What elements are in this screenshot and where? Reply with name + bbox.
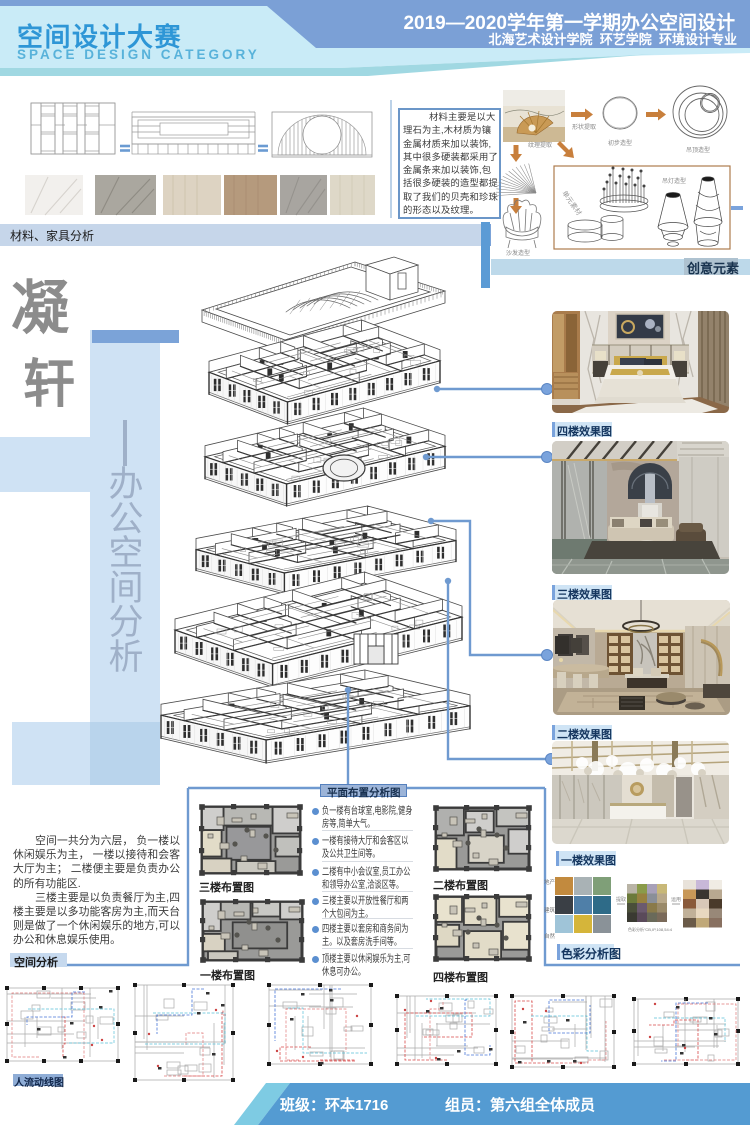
svg-text:单元素材: 单元素材 [560,189,583,217]
svg-text:色彩分析"CB,IP,108,54:4: 色彩分析"CB,IP,108,54:4 [628,926,673,932]
svg-text:自然: 自然 [544,932,556,940]
svg-text:建筑: 建筑 [544,906,556,914]
svg-text:提取: 提取 [616,896,626,903]
svg-text:吊灯造型: 吊灯造型 [662,177,686,185]
svg-text:纹理提取: 纹理提取 [528,141,552,149]
svg-text:初步造型: 初步造型 [608,139,632,147]
svg-text:运用: 运用 [671,896,681,903]
svg-text:形状提取: 形状提取 [572,123,596,131]
svg-text:吊顶造型: 吊顶造型 [686,146,710,154]
svg-text:地产: 地产 [544,878,556,886]
